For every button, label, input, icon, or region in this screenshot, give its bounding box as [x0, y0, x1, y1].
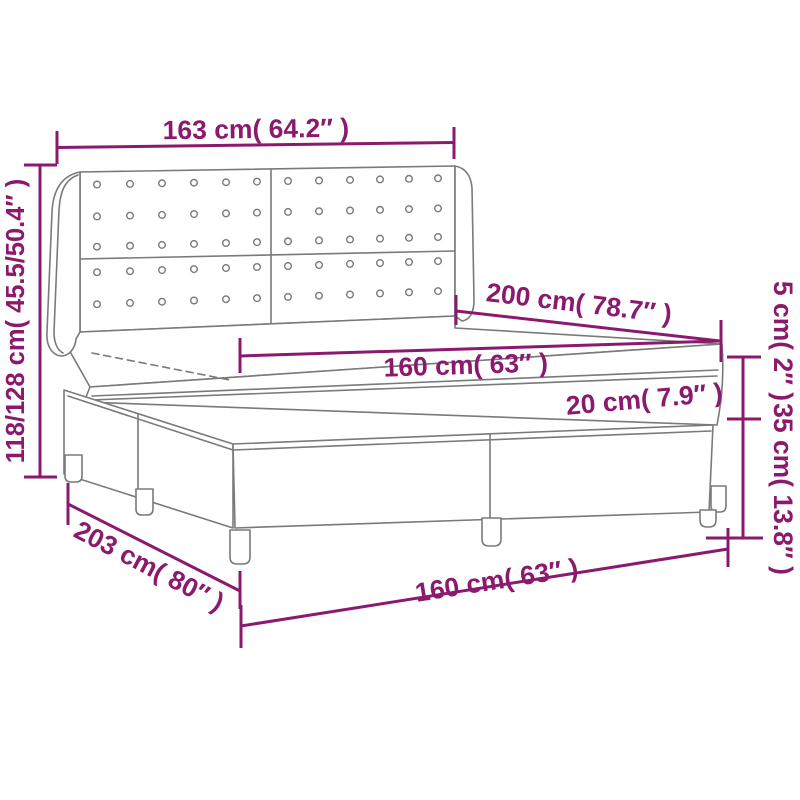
headboard-left-wing [47, 172, 80, 356]
headboard-button [316, 237, 323, 244]
dim-label-headboard-width: 163 cm( 64.2″ ) [162, 113, 349, 146]
diagram-canvas: 163 cm( 64.2″ ) 118/128 cm( 45.5/50.4″ )… [0, 0, 800, 800]
headboard-button [347, 177, 354, 184]
headboard-button [191, 211, 198, 218]
headboard-button [285, 294, 292, 301]
headboard-button [285, 209, 292, 216]
bed-leg-far-right [711, 486, 726, 512]
headboard-button [316, 262, 323, 269]
dim-label-mattress-width: 160 cm( 63″ ) [383, 347, 548, 382]
headboard-button [223, 179, 230, 186]
headboard-button [377, 176, 384, 183]
dim-base-width: 160 cm( 63″ ) [241, 528, 728, 648]
headboard-button [406, 289, 413, 296]
headboard-button [285, 178, 292, 185]
headboard-button [191, 297, 198, 304]
headboard-button [347, 261, 354, 268]
headboard-button [223, 296, 230, 303]
headboard-button [94, 213, 101, 220]
headboard-button [435, 205, 442, 212]
headboard-button [435, 288, 442, 295]
headboard-button [285, 263, 292, 270]
headboard-button [127, 212, 134, 219]
headboard-button [127, 243, 134, 250]
bed-leg-front-middle [482, 518, 501, 546]
headboard-button [406, 235, 413, 242]
headboard-button [191, 241, 198, 248]
headboard-button [254, 239, 261, 246]
headboard-button [159, 180, 166, 187]
bed-dimension-diagram: 163 cm( 64.2″ ) 118/128 cm( 45.5/50.4″ )… [0, 0, 800, 800]
headboard-button [406, 259, 413, 266]
headboard-button [435, 175, 442, 182]
headboard-button [285, 238, 292, 245]
dim-label-base-length: 203 cm( 80″ ) [69, 515, 229, 618]
headboard-button [127, 268, 134, 275]
headboard-button [223, 265, 230, 272]
headboard-button [377, 235, 384, 242]
headboard-button [347, 207, 354, 214]
headboard-button [223, 210, 230, 217]
headboard-button [377, 207, 384, 214]
bed-leg-side-middle [136, 489, 153, 515]
headboard-button [94, 181, 101, 188]
dim-label-bed-length: 200 cm( 78.7″ ) [485, 277, 674, 329]
bed-leg-front-left [230, 530, 250, 564]
dim-label-base-width: 160 cm( 63″ ) [413, 552, 580, 607]
headboard-right-wing [455, 166, 474, 321]
headboard-button [377, 290, 384, 297]
headboard-button [316, 292, 323, 299]
headboard-button [254, 264, 261, 271]
headboard-button [254, 295, 261, 302]
headboard-panel [80, 166, 455, 332]
dim-label-topper-height: 5 cm( 2″ ) [768, 281, 798, 401]
left-wing-shape [47, 172, 80, 356]
bed-leg-headboard [65, 455, 82, 482]
headboard-button [223, 240, 230, 247]
headboard-button [159, 242, 166, 249]
headboard-button [127, 181, 134, 188]
headboard [80, 166, 474, 332]
headboard-button [94, 269, 101, 276]
headboard-button [377, 260, 384, 267]
headboard-button [316, 177, 323, 184]
headboard-button [435, 258, 442, 265]
headboard-button [316, 208, 323, 215]
dim-label-base-height: 35 cm( 13.8″ ) [768, 403, 798, 575]
dim-label-overall-height: 118/128 cm( 45.5/50.4″ ) [2, 179, 30, 463]
headboard-button [406, 176, 413, 183]
headboard-button [254, 178, 261, 185]
headboard-button [347, 291, 354, 298]
headboard-button [191, 179, 198, 186]
headboard-button [159, 298, 166, 305]
bed-leg-front-right [700, 510, 716, 527]
headboard-button [94, 301, 101, 308]
headboard-button [347, 236, 354, 243]
headboard-button [159, 267, 166, 274]
headboard-button [435, 234, 442, 241]
headboard-button [127, 300, 134, 307]
headboard-button [191, 266, 198, 273]
headboard-button [406, 206, 413, 213]
headboard-button [94, 243, 101, 250]
headboard-button [159, 212, 166, 219]
dim-headboard-width: 163 cm( 64.2″ ) [57, 113, 454, 164]
headboard-button [254, 209, 261, 216]
